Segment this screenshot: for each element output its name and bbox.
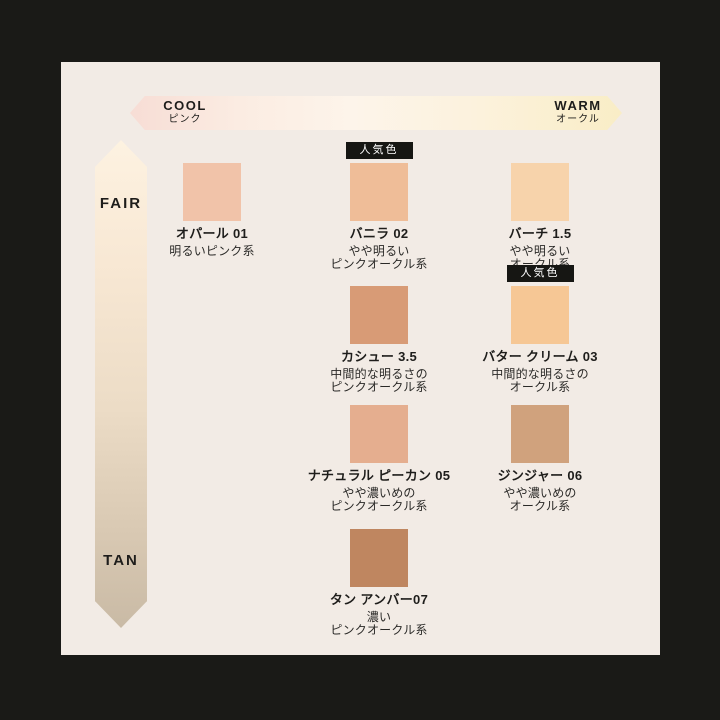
shade-card-tan-amber-07: タン アンバー07 濃い ピンクオークル系 [289,508,469,638]
shade-swatch [350,405,408,463]
shade-desc-line: ピンクオークル系 [330,624,427,637]
shade-card-opal-01: オパール 01 明るいピンク系 [122,142,302,258]
cool-warm-axis-arrow: COOL ピンク WARM オークル [130,96,622,130]
shade-card-natural-pecan-05: ナチュラル ピーカン 05 やや濃いめの ピンクオークル系 [289,384,469,514]
warm-sub-label: オークル [533,114,623,125]
shade-desc-line: 明るいピンク系 [169,245,254,258]
shade-swatch [511,163,569,221]
badge-slot: 人気色 [346,142,413,163]
shade-name: カシュー 3.5 [341,350,417,365]
shade-desc-line: 中間的な明るさの [491,368,589,381]
shade-swatch [350,286,408,344]
shade-card-cashew-3-5: カシュー 3.5 中間的な明るさの ピンクオークル系 [289,265,469,395]
shade-desc-line: やや濃いめの [503,487,576,500]
shade-desc-line: 中間的な明るさの [330,368,428,381]
shade-description: 濃い ピンクオークル系 [330,611,427,638]
shade-card-butter-cream-03: 人気色 バター クリーム 03 中間的な明るさの オークル系 [450,265,630,395]
shade-chart-image: { "chart_title": "foundation-shade-map",… [0,0,720,720]
popular-color-badge: 人気色 [346,142,413,159]
popular-color-badge: 人気色 [507,265,574,282]
cool-label: COOL [140,99,230,113]
tan-label: TAN [95,552,147,569]
shade-name: ナチュラル ピーカン 05 [308,469,451,484]
shade-name: バター クリーム 03 [482,350,598,365]
warm-label: WARM [533,99,623,113]
shade-desc-line: やや濃いめの [330,487,427,500]
shade-desc-line: やや明るい [509,245,570,258]
shade-name: ジンジャー 06 [498,469,583,484]
cool-axis-label: COOL ピンク [140,99,230,125]
shade-description: 明るいピンク系 [169,245,254,258]
cool-sub-label: ピンク [140,114,230,125]
shade-description: やや濃いめの オークル系 [503,487,576,514]
shade-name: オパール 01 [176,227,248,242]
shade-desc-line: オークル系 [503,500,576,513]
shade-swatch [183,163,241,221]
shade-card-vanilla-02: 人気色 バニラ 02 やや明るい ピンクオークル系 [289,142,469,272]
shade-swatch [350,529,408,587]
shade-card-birch-1-5: バーチ 1.5 やや明るい オークル系 [450,142,630,272]
shade-card-ginger-06: ジンジャー 06 やや濃いめの オークル系 [450,384,630,514]
shade-swatch [511,405,569,463]
shade-desc-line: 濃い [330,611,427,624]
shade-chart-panel: COOL ピンク WARM オークル FAIR TAN オパール 01 明るいピ… [61,62,660,655]
shade-name: タン アンバー07 [330,593,428,608]
shade-swatch [350,163,408,221]
shade-name: バニラ 02 [350,227,409,242]
warm-axis-label: WARM オークル [533,99,623,125]
shade-desc-line: やや明るい [330,245,427,258]
shade-swatch [511,286,569,344]
badge-slot: 人気色 [507,265,574,286]
shade-name: バーチ 1.5 [509,227,572,242]
